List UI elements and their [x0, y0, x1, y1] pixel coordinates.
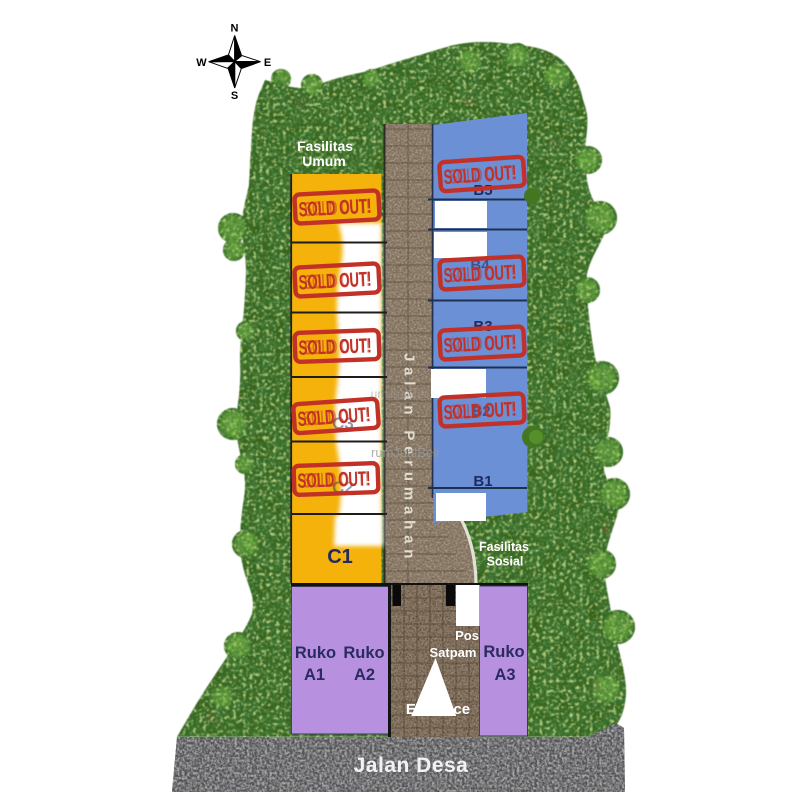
- svg-text:N: N: [231, 23, 239, 35]
- svg-text:Ruko: Ruko: [483, 643, 524, 661]
- svg-text:Entrance: Entrance: [406, 701, 470, 718]
- svg-text:Fasilitas: Fasilitas: [479, 540, 529, 554]
- svg-text:Jalan Desa: Jalan Desa: [354, 754, 469, 777]
- svg-text:Sosial: Sosial: [487, 555, 524, 569]
- svg-text:A2: A2: [354, 666, 375, 684]
- svg-text:Umum: Umum: [302, 153, 346, 169]
- svg-text:Fasilitas: Fasilitas: [297, 138, 353, 154]
- svg-text:Satpam: Satpam: [430, 645, 477, 660]
- svg-text:Pos: Pos: [455, 628, 479, 643]
- svg-text:umJualBeli: umJualBeli: [371, 387, 430, 401]
- svg-text:C1: C1: [327, 546, 353, 568]
- svg-text:Ruko: Ruko: [343, 644, 384, 662]
- svg-text:E: E: [264, 57, 271, 69]
- svg-text:Ruko: Ruko: [295, 644, 336, 662]
- svg-text:B1: B1: [473, 473, 492, 490]
- svg-text:W: W: [196, 57, 207, 69]
- svg-text:S: S: [231, 90, 238, 102]
- svg-text:A1: A1: [304, 666, 325, 684]
- svg-text:A3: A3: [494, 666, 515, 684]
- svg-text:rumJualBeli: rumJualBeli: [371, 445, 439, 460]
